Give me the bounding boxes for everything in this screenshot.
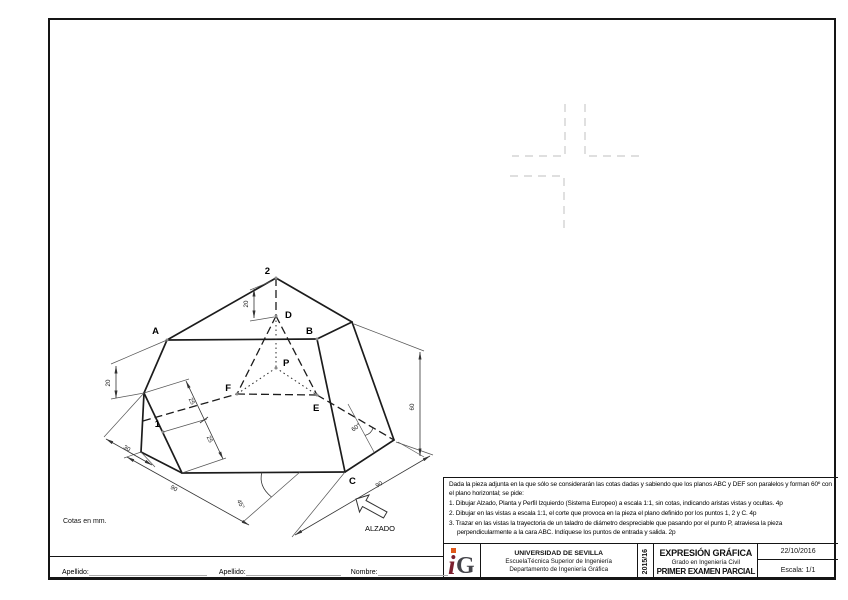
instruction-item-2: 2. Dibujar en las vistas a escala 1:1, e… bbox=[449, 510, 834, 519]
exam-sheet: 60 20 20 25 25 30 90 90 45° 60° 2 D A B … bbox=[0, 0, 848, 600]
instructions-box: Dada la pieza adjunta en la que sólo se … bbox=[443, 477, 838, 543]
apellido2-field[interactable] bbox=[246, 567, 341, 576]
exam-name: PRIMER EXAMEN PARCIAL bbox=[657, 567, 755, 577]
apellido1-label: Apellido: bbox=[62, 569, 89, 576]
subject-name: EXPRESIÓN GRÁFICA bbox=[660, 548, 753, 559]
svg-text:i: i bbox=[448, 550, 456, 578]
svg-text:G: G bbox=[456, 553, 475, 578]
dim-left-height: 20 bbox=[105, 379, 112, 386]
point-markers bbox=[162, 277, 319, 434]
label-point-E: E bbox=[313, 403, 319, 414]
academic-year: 2015/16 bbox=[642, 549, 649, 574]
title-block: G i UNIVERSIDAD DE SEVILLA EscuelaTécnic… bbox=[443, 543, 838, 580]
ig-logo-icon: G i bbox=[445, 546, 479, 578]
units-note: Cotas en mm. bbox=[63, 518, 107, 525]
label-point-F: F bbox=[225, 383, 231, 394]
instruction-item-1: 1. Dibujar Alzado, Planta y Perfil Izqui… bbox=[449, 500, 834, 509]
dim-seg-b: 25 bbox=[205, 435, 215, 445]
school-name: EscuelaTécnica Superior de Ingeniería bbox=[505, 558, 612, 566]
department-logo: G i bbox=[444, 544, 481, 580]
degree-name: Grado en Ingeniería Civil bbox=[672, 559, 740, 567]
student-name-strip: Apellido: Apellido: Nombre: bbox=[48, 556, 443, 580]
label-point-P: P bbox=[283, 358, 290, 369]
view-layout-guides bbox=[510, 104, 640, 230]
label-point-B: B bbox=[306, 326, 313, 337]
logo-dot bbox=[451, 548, 456, 553]
dim-angle-right: 60° bbox=[350, 422, 362, 433]
label-point-D: D bbox=[285, 310, 292, 321]
drawing-scale: Escala: 1/1 bbox=[758, 560, 838, 580]
university-name: UNIVERSIDAD DE SEVILLA bbox=[514, 550, 603, 559]
hidden-edges bbox=[143, 278, 394, 440]
university-cell: UNIVERSIDAD DE SEVILLA EscuelaTécnica Su… bbox=[481, 544, 638, 580]
alzado-view-arrow: ALZADO bbox=[356, 495, 395, 533]
nombre-field[interactable] bbox=[378, 567, 448, 576]
alzado-label: ALZADO bbox=[365, 524, 395, 533]
dim-height: 60 bbox=[409, 403, 416, 410]
label-point-A: A bbox=[152, 326, 159, 337]
exam-title-cell: EXPRESIÓN GRÁFICA Grado en Ingeniería Ci… bbox=[654, 544, 758, 580]
academic-year-cell: 2015/16 bbox=[638, 544, 655, 580]
label-point-1: 1 bbox=[155, 419, 161, 430]
dim-angle-base: 45° bbox=[235, 499, 246, 511]
dim-offset-left: 30 bbox=[122, 444, 132, 454]
instruction-item-3: 3. Trazar en las vistas la trayectoria d… bbox=[449, 520, 834, 538]
label-point-C: C bbox=[349, 476, 356, 487]
label-point-2: 2 bbox=[265, 266, 270, 277]
apellido2-label: Apellido: bbox=[219, 569, 246, 576]
nombre-label: Nombre: bbox=[351, 569, 378, 576]
dim-seg-a: 25 bbox=[187, 397, 197, 407]
exam-date: 22/10/2016 bbox=[758, 544, 838, 560]
date-scale-cell: 22/10/2016 Escala: 1/1 bbox=[758, 544, 838, 580]
department-name: Departamento de Ingeniería Gráfica bbox=[509, 566, 608, 574]
dotted-lines-to-P bbox=[237, 316, 317, 395]
apellido1-field[interactable] bbox=[89, 567, 207, 576]
solid-edges bbox=[141, 278, 394, 473]
dim-top-height: 20 bbox=[243, 300, 250, 307]
instructions-intro: Dada la pieza adjunta en la que sólo se … bbox=[449, 481, 834, 499]
view-direction-arrow-icon bbox=[356, 495, 387, 518]
